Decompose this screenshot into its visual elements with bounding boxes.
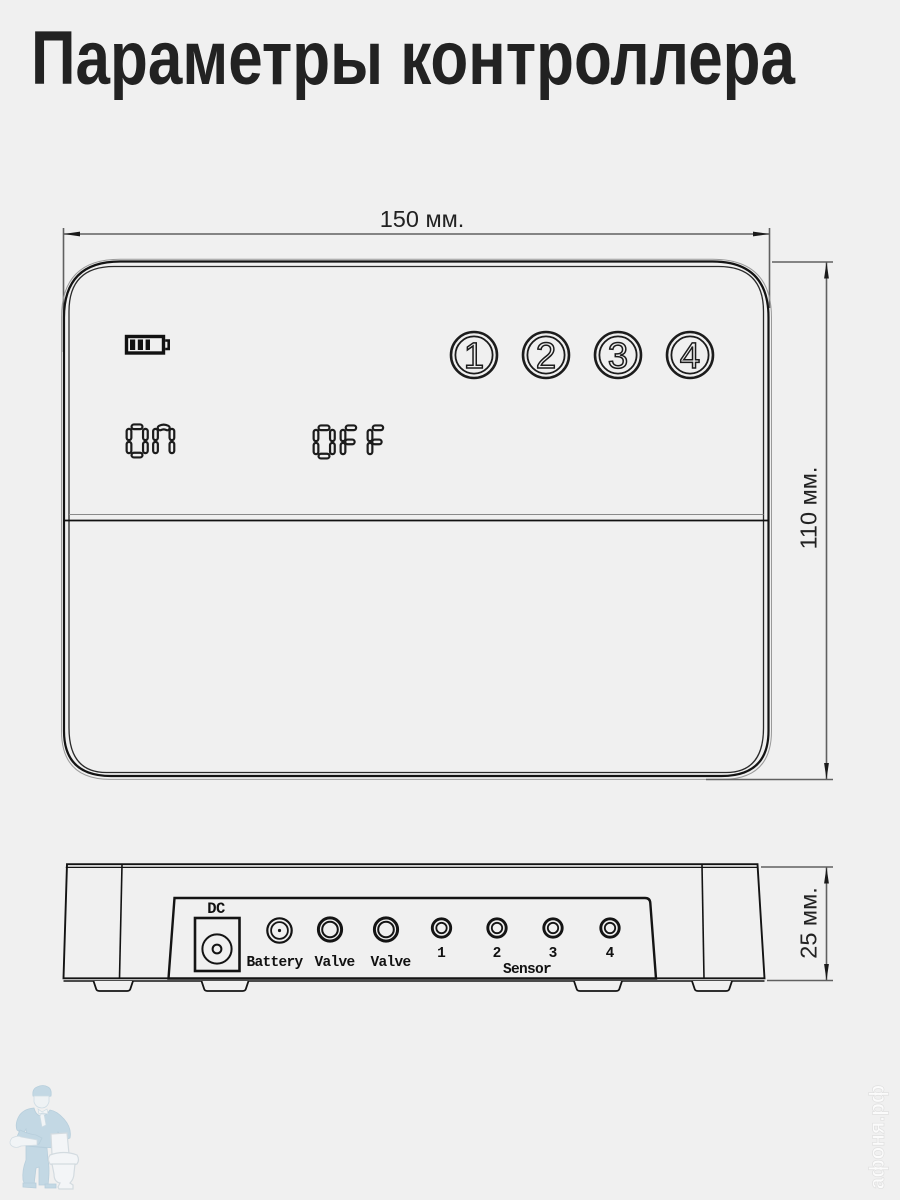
svg-text:110 мм.: 110 мм. (796, 467, 822, 550)
svg-text:4: 4 (606, 946, 615, 962)
svg-text:3: 3 (549, 946, 558, 962)
svg-text:Valve: Valve (370, 955, 410, 971)
svg-text:Sensor: Sensor (503, 962, 551, 978)
svg-text:150 мм.: 150 мм. (380, 206, 465, 232)
svg-text:25 мм.: 25 мм. (796, 887, 822, 959)
svg-text:2: 2 (493, 946, 502, 962)
svg-text:Battery: Battery (246, 955, 303, 971)
svg-text:DC: DC (207, 900, 225, 918)
svg-text:афоня.рф: афоня.рф (866, 1085, 889, 1190)
svg-text:Valve: Valve (314, 955, 354, 971)
svg-text:Параметры контроллера: Параметры контроллера (31, 16, 796, 101)
svg-text:1: 1 (437, 946, 446, 962)
